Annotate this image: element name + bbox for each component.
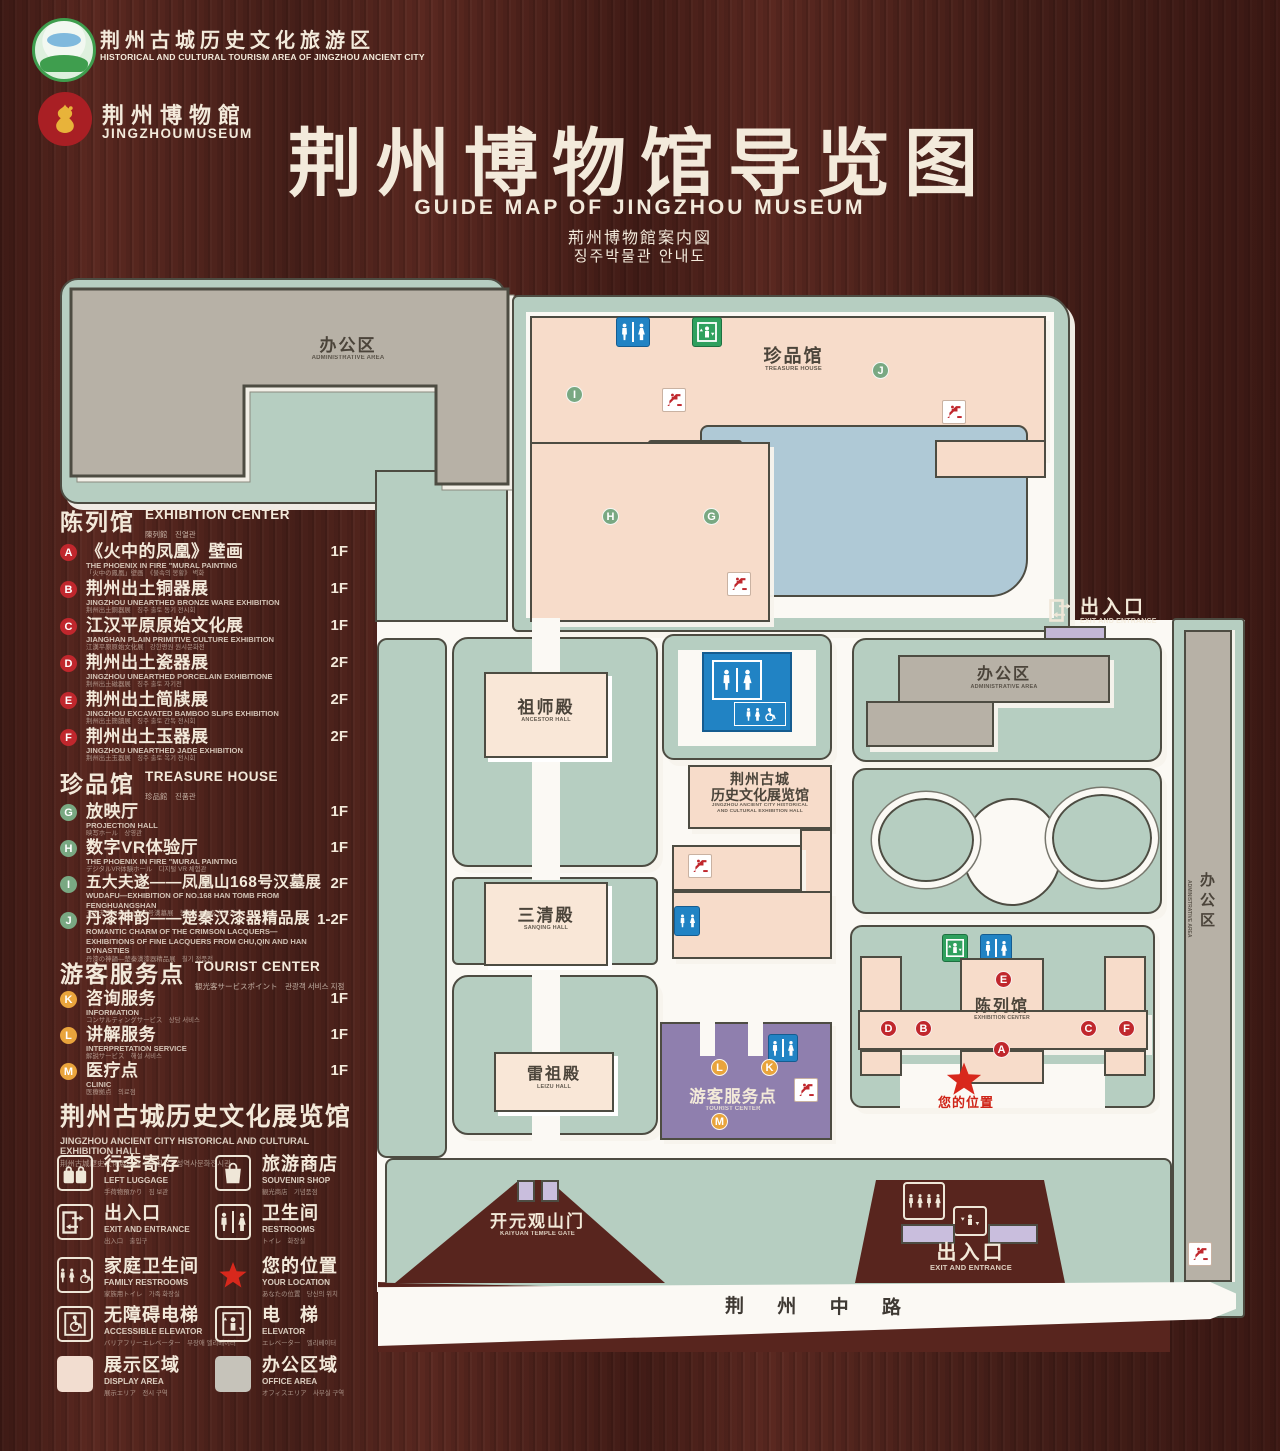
map-badge-c: C (1080, 1020, 1097, 1037)
list-item-c: C 1F 江汉平原原始文化展JIANGHAN PLAIN PRIMITIVE C… (60, 617, 352, 652)
tourism-area-logo (32, 18, 96, 82)
label-admin-topleft: 办公区 ADMINISTRATIVE AREA (278, 336, 418, 362)
section-treasure-house: 珍品馆 TREASURE HOUSE珍品館 진품관 (60, 765, 278, 804)
badge-k: K (60, 991, 77, 1008)
map-badge-d: D (880, 1020, 897, 1037)
legend-family-restrooms: 家庭卫生间FAMILY RESTROOMS家族用トイレ 가족 화장실 (57, 1257, 199, 1298)
escalator-icon-right-strip (1188, 1242, 1212, 1266)
map-badge-k: K (761, 1059, 778, 1076)
list-item-g: G 1F 放映厅PROJECTION HALL映写ホール 상영관 (60, 803, 352, 838)
legend-souvenir-shop: 旅游商店SOUVENIR SHOP観光商店 기념품점 (215, 1155, 338, 1196)
area-green-left-strip (377, 638, 447, 1158)
garden-lawn-left (872, 792, 980, 888)
restroom-sign-treasure (616, 317, 650, 347)
floor: 1F (330, 580, 348, 597)
corridor-3 (532, 964, 560, 1054)
south-gate-left (901, 1224, 955, 1244)
map-badge-g: G (703, 508, 720, 525)
elevator-icon (215, 1306, 251, 1342)
floor: 1F (330, 543, 348, 560)
list-item-m: M 1F 医疗点CLINIC医療拠点 의료점 (60, 1062, 352, 1097)
label-kaiyuan-gate: 开元观山门 KAIYUAN TEMPLE GATE (455, 1212, 620, 1238)
floor: 1F (330, 1026, 348, 1043)
list-item-a: A 1F 《火中的凤凰》壁画THE PHOENIX IN FIRE "MURAL… (60, 543, 352, 578)
shopping-bag-icon (215, 1155, 251, 1191)
corridor-2 (532, 758, 560, 880)
exhibition-wing-3 (860, 1050, 902, 1076)
floor: 1F (330, 803, 348, 820)
tourist-notch-2 (748, 1020, 763, 1056)
badge-i: I (60, 876, 77, 893)
section-exhibition-center: 陈列馆 EXHIBITION CENTER陳列館 진열관 (60, 503, 290, 542)
escalator-icon-jz-hall (688, 854, 712, 878)
map-badge-h: H (602, 508, 619, 525)
legend-office-area: 办公区域OFFICE AREAオフィスエリア 사무실 구역 (215, 1356, 344, 1397)
map-badge-b: B (915, 1020, 932, 1037)
escalator-icon-treasure-1 (662, 388, 686, 412)
restroom-icon (215, 1204, 251, 1240)
label-exit-right: 出入口 EXIT AND ENTRANCE (1080, 597, 1170, 626)
label-exit-bottom: 出入口 EXIT AND ENTRANCE (912, 1242, 1030, 1273)
your-location-star-icon (945, 1060, 983, 1098)
page-title-ko: 징주박물관 안내도 (0, 245, 1280, 266)
floor: 1F (330, 617, 348, 634)
badge-d: D (60, 655, 77, 672)
badge-l: L (60, 1027, 77, 1044)
label-exhibition-center: 陈列馆 EXHIBITION CENTER (956, 998, 1048, 1022)
kaiyuan-gate-right (541, 1180, 559, 1202)
list-item-h: H 1F 数字VR体验厅THE PHOENIX IN FIRE "MURAL P… (60, 839, 352, 874)
escalator-icon-treasure-3 (727, 572, 751, 596)
display-area-swatch (57, 1356, 93, 1392)
map-badge-j: J (872, 362, 889, 379)
label-admin-right: 办公区 (1196, 872, 1217, 932)
map-badge-a: A (993, 1041, 1010, 1058)
label-admin-right-en: ADMINISTRATIVE AREA (1186, 880, 1192, 938)
legend-your-location: 您的位置YOUR LOCATIONあなたの位置 당신의 위치 (215, 1257, 338, 1298)
section-title-sub: 陳列館 진열관 (145, 530, 196, 539)
legend-elevator: 电 梯ELEVATORエレベーター 엘리베이터 (215, 1306, 336, 1347)
admin-building-topleft (68, 286, 520, 500)
label-leizu-hall: 雷祖殿 LEIZU HALL (496, 1066, 612, 1090)
luggage-icon (57, 1155, 93, 1191)
tourism-area-name-en: HISTORICAL AND CULTURAL TOURISM AREA OF … (100, 52, 460, 62)
list-item-e: E 2F 荆州出土简牍展JINGZHOU EXCAVATED BAMBOO SL… (60, 691, 352, 726)
legend-restrooms: 卫生间RESTROOMSトイレ 화장실 (215, 1204, 319, 1245)
label-jz-exhibition-hall: 荆州古城 历史文化展览馆 JINGZHOU ANCIENT CITY HISTO… (690, 772, 830, 814)
family-restroom-icon (57, 1257, 93, 1293)
page-title: 荆州博物馆导览图 (0, 104, 1280, 211)
list-item-f: F 2F 荆州出土玉器展JINGZHOU UNEARTHED JADE EXHI… (60, 728, 352, 763)
restroom-icon-south (903, 1182, 945, 1220)
accessible-elevator-icon (57, 1306, 93, 1342)
badge-h: H (60, 840, 77, 857)
tourism-area-name: 荆州古城历史文化旅游区 (100, 24, 375, 53)
map-badge-l: L (711, 1059, 728, 1076)
restroom-icon-central (712, 660, 762, 700)
badge-j: J (60, 912, 77, 929)
label-treasure-house: 珍品馆 TREASURE HOUSE (736, 346, 851, 373)
elevator-icon-south (953, 1206, 987, 1236)
tourist-notch-1 (700, 1020, 715, 1056)
escalator-icon-treasure-2 (942, 400, 966, 424)
floor: 2F (330, 728, 348, 745)
floor: 2F (330, 691, 348, 708)
legend-exit-entrance: 出入口EXIT AND ENTRANCE出入口 출입구 (57, 1204, 190, 1245)
entrance-door-icon-right (1049, 599, 1075, 627)
map-badge-i: I (566, 386, 583, 403)
family-restroom-icon-central (734, 702, 786, 726)
garden-lawn-right (1046, 788, 1158, 888)
admin-building-mid-bottom (866, 701, 994, 747)
map-badge-f: F (1118, 1020, 1135, 1037)
legend-accessible-elevator: 无障碍电梯ACCESSIBLE ELEVATORバリアフリーエレベーター 무장애… (57, 1306, 236, 1347)
floor: 1F (330, 839, 348, 856)
museum-guide-map-poster: 荆州古城历史文化旅游区 HISTORICAL AND CULTURAL TOUR… (0, 0, 1280, 1451)
admin-building-right (1184, 630, 1232, 1282)
legend-display-area: 展示区域DISPLAY AREA展示エリア 전시 구역 (57, 1356, 180, 1397)
badge-f: F (60, 729, 77, 746)
page-title-en: GUIDE MAP OF JINGZHOU MUSEUM (0, 196, 1280, 220)
floor: 1F (330, 990, 348, 1007)
label-road: 荆 州 中 路 (665, 1291, 975, 1321)
kaiyuan-gate-left (517, 1180, 535, 1202)
exhibition-wing-4 (1104, 1050, 1146, 1076)
label-tourist-center: 游客服务点 TOURIST CENTER (666, 1088, 800, 1113)
floor: 1F (330, 1062, 348, 1079)
list-item-k: K 1F 咨询服务INFORMATIONコンサルティングサービス 상담 서비스 (60, 990, 352, 1025)
corridor-1 (532, 618, 560, 676)
section-title: 陈列馆 (60, 503, 135, 537)
location-star-icon (215, 1257, 251, 1293)
badge-a: A (60, 544, 77, 561)
badge-m: M (60, 1063, 77, 1080)
exhibition-wing-1 (860, 956, 902, 1014)
badge-g: G (60, 804, 77, 821)
badge-c: C (60, 618, 77, 635)
exhibition-wing-2 (1104, 956, 1146, 1014)
floor: 1-2F (317, 911, 348, 928)
exit-entrance-icon (57, 1204, 93, 1240)
legend-left-luggage: 行李寄存LEFT LUGGAGE手荷物預かり 짐 보관 (57, 1155, 180, 1196)
list-item-l: L 1F 讲解服务INTERPRETATION SERVICE解説サービス 해설… (60, 1026, 352, 1061)
label-sanqing-hall: 三清殿 SANQING HALL (486, 906, 606, 931)
corridor-4 (532, 1112, 560, 1160)
floor: 2F (330, 654, 348, 671)
elevator-sign-treasure (692, 317, 722, 347)
list-item-d: D 2F 荆州出土瓷器展JINGZHOU UNEARTHED PORCELAIN… (60, 654, 352, 689)
floor: 2F (330, 875, 348, 892)
restroom-sign-tourist (768, 1034, 798, 1062)
office-area-swatch (215, 1356, 251, 1392)
list-item-b: B 1F 荆州出土铜器展JINGZHOU UNEARTHED BRONZE WA… (60, 580, 352, 615)
label-admin-mid: 办公区 ADMINISTRATIVE AREA (938, 666, 1070, 690)
restroom-sign-jz-hall (674, 906, 700, 936)
map-badge-m: M (711, 1113, 728, 1130)
section-title-en: EXHIBITION CENTER (145, 507, 290, 522)
label-ancestor-hall: 祖师殿 ANCESTOR HALL (486, 698, 606, 723)
south-gate-right (988, 1224, 1038, 1244)
map-badge-e: E (995, 971, 1012, 988)
treasure-wing-right (935, 440, 1046, 478)
badge-e: E (60, 692, 77, 709)
label-your-location: 您的位置 (918, 1096, 1014, 1111)
badge-b: B (60, 581, 77, 598)
